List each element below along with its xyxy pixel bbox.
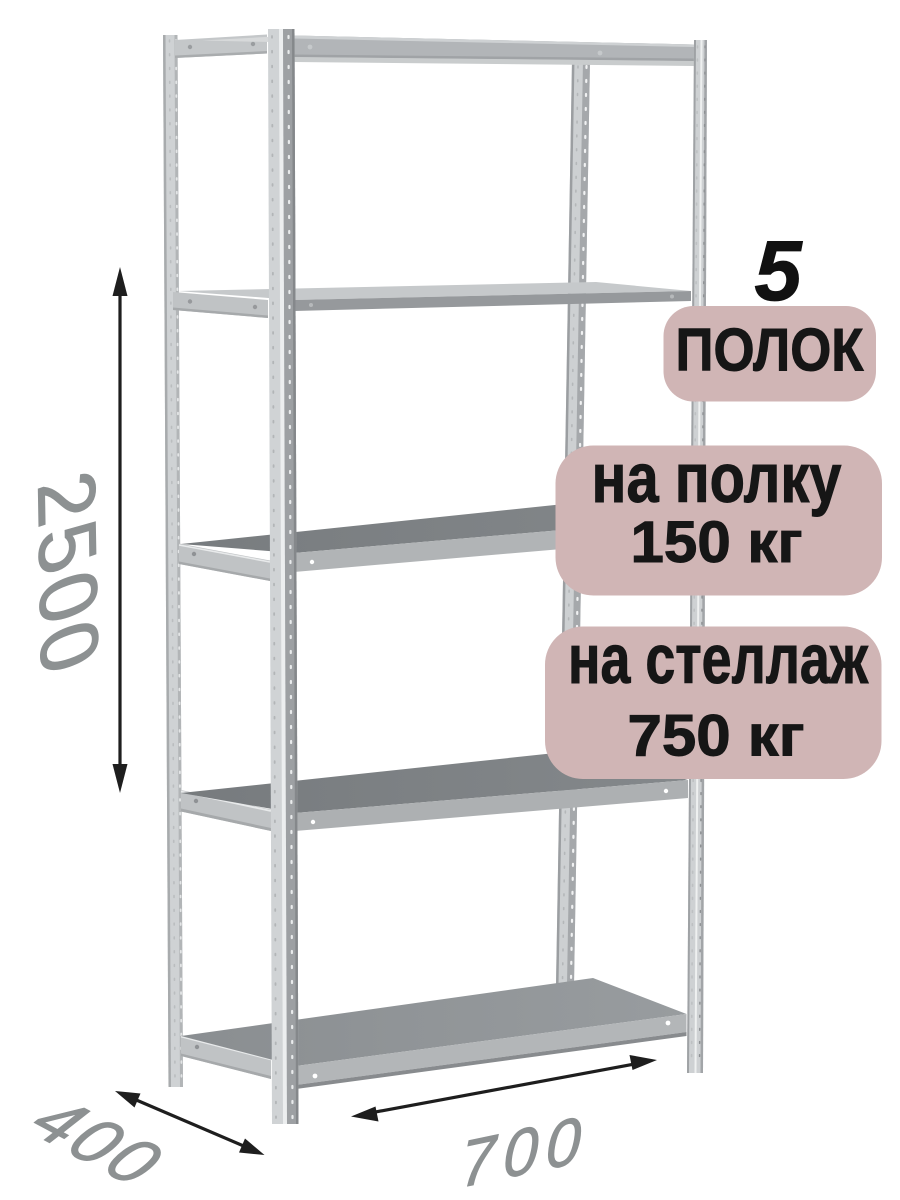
svg-text:150 кг: 150 кг: [631, 510, 803, 575]
svg-text:5: 5: [754, 224, 803, 319]
svg-text:2500: 2500: [21, 459, 116, 689]
svg-text:750 кг: 750 кг: [628, 704, 805, 769]
svg-text:ПОЛОК: ПОЛОК: [676, 317, 864, 384]
svg-text:на стеллаж: на стеллаж: [568, 620, 869, 698]
svg-text:на полку: на полку: [592, 439, 842, 517]
